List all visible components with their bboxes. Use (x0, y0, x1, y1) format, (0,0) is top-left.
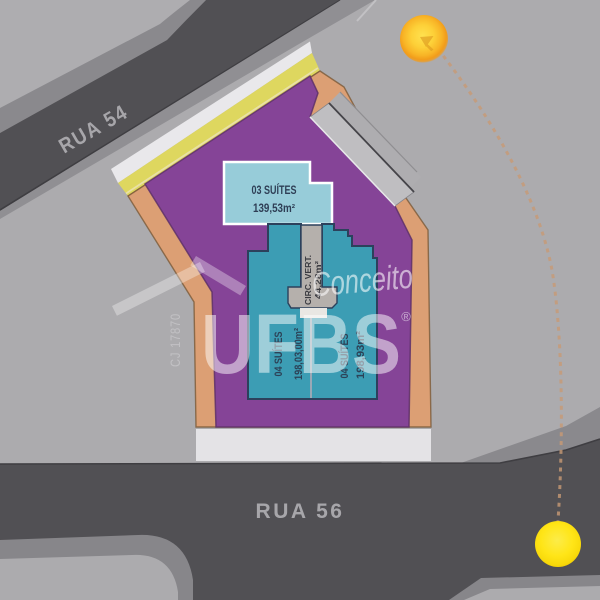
svg-text:RUA 56: RUA 56 (256, 500, 345, 523)
svg-text:UFBS: UFBS (201, 297, 401, 391)
svg-text:139,53m²: 139,53m² (253, 203, 295, 215)
svg-text:CJ 17870: CJ 17870 (167, 313, 183, 367)
svg-text:®: ® (401, 309, 411, 324)
svg-text:03 SUÍTES: 03 SUÍTES (252, 184, 297, 197)
